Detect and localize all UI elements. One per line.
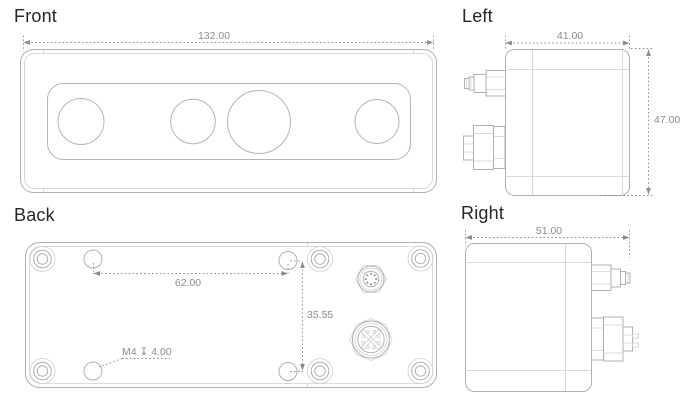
front-lens-4 — [355, 100, 399, 144]
left-height-dimension-text: 47.00 — [654, 114, 680, 126]
left-height-extension-lines — [600, 49, 653, 196]
back-view-drawing: 62.00 35.55 M4 ↧ 4.00 — [26, 243, 437, 388]
right-view-drawing: 51.00 — [466, 225, 639, 392]
right-width-dimension-text: 51.00 — [536, 225, 562, 237]
back-thread-note-leader — [99, 359, 170, 368]
back-mounting-holes — [84, 250, 297, 381]
front-lens-2 — [171, 99, 216, 144]
front-width-dimension-text: 132.00 — [198, 30, 230, 42]
front-lens-3 — [228, 91, 291, 154]
back-connector-xcoded — [350, 319, 392, 361]
back-vertical-dimension-text: 35.55 — [307, 309, 333, 321]
orthographic-views-canvas: 132.00 — [0, 0, 694, 420]
left-view-bottom-connector — [464, 126, 506, 170]
technical-drawing-page: Front Left Back Right 132.00 — [0, 0, 694, 420]
right-view-top-connector — [592, 265, 631, 291]
back-horizontal-dimension-text: 62.00 — [175, 277, 201, 289]
front-lens-1 — [58, 99, 104, 145]
back-connector-8pin — [356, 266, 387, 293]
front-view-drawing: 132.00 — [21, 30, 437, 193]
left-view-top-connector — [465, 71, 506, 97]
left-width-dimension-text: 41.00 — [557, 30, 583, 42]
front-window — [48, 84, 411, 160]
right-view-bottom-connector — [592, 317, 639, 361]
left-view-drawing: 41.00 47.00 — [464, 30, 681, 196]
back-thread-note-text: M4 ↧ 4.00 — [122, 346, 172, 358]
front-plate-ticks — [44, 50, 414, 193]
